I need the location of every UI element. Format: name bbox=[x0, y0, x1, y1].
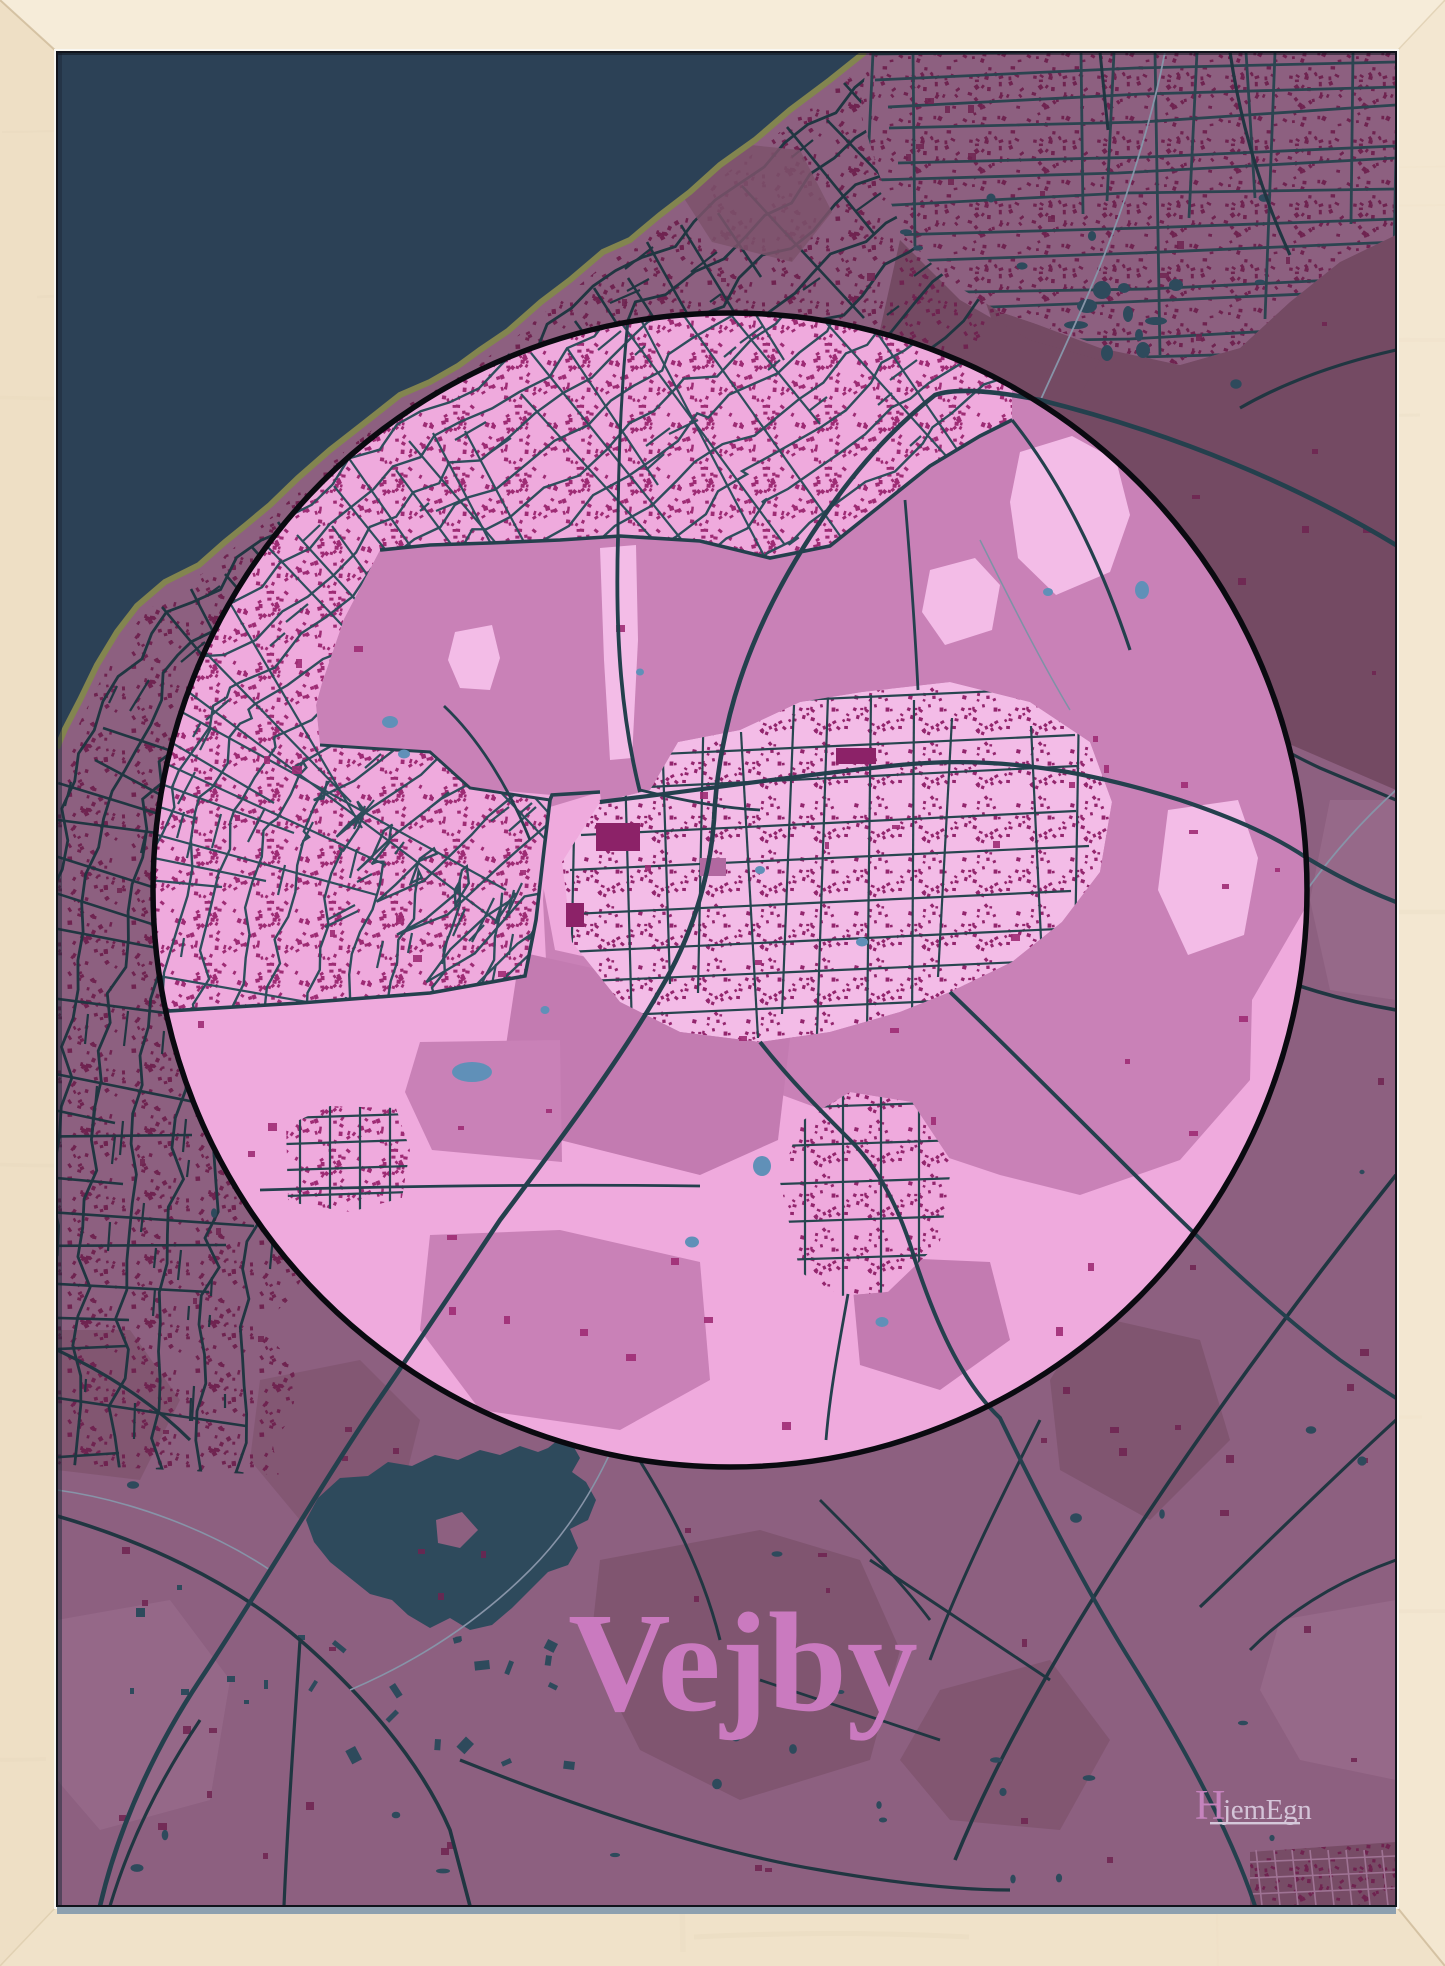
svg-text:Vejby: Vejby bbox=[568, 1583, 918, 1741]
svg-text:jemEgn: jemEgn bbox=[1222, 1794, 1312, 1826]
